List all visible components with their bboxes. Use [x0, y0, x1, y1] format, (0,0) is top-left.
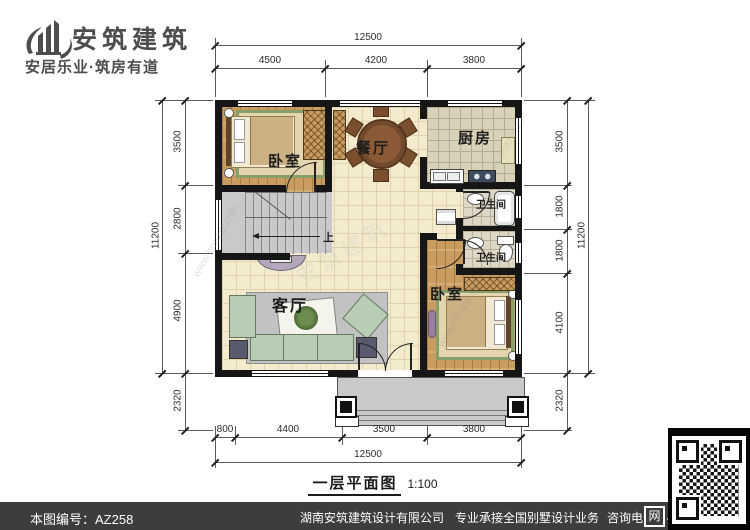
door-leaf [314, 162, 316, 192]
qr-code-image [672, 436, 746, 524]
window-bath2 [515, 243, 522, 263]
dining-cabinet [333, 110, 346, 160]
dim-label: 4400 [258, 424, 318, 435]
room-label-bedroom2: 卧室 [430, 283, 464, 304]
kitchen-stove [468, 170, 496, 183]
bedroom1-wardrobe [303, 110, 326, 160]
extension-line [524, 373, 595, 374]
kitchen-sink-basin [433, 172, 446, 181]
window-kitchen [448, 100, 502, 107]
kitchen-sink-basin [447, 172, 460, 181]
porch-column-core [340, 401, 352, 413]
dimension-line-bottom-seg [215, 437, 521, 438]
door-leaf [463, 191, 489, 193]
sofa-side [229, 295, 256, 338]
footer-bar: 本图编号：AZ258 湖南安筑建筑设计有限公司 专业承接全国别墅设计业务 咨询电… [0, 502, 750, 530]
dim-label: 3500 [173, 120, 184, 164]
drawing-number: 本图编号：AZ258 [30, 509, 133, 528]
dim-label: 4500 [240, 55, 300, 66]
bedroom2-blanket [447, 297, 486, 347]
corridor-cabinet [436, 209, 456, 225]
bedroom2-bench [428, 310, 436, 338]
web-badge: 网 [644, 506, 665, 527]
dim-label: 4900 [173, 289, 184, 333]
dim-label: 4100 [555, 301, 566, 345]
wall-bedroom1-bottom [222, 185, 286, 192]
wall-kitchen-left [420, 107, 427, 119]
wall-stairs-bottom [215, 253, 290, 260]
dim-label: 3800 [444, 55, 504, 66]
bedroom2-pillow [494, 324, 505, 345]
bedroom1-pillow [234, 119, 245, 140]
porch-column-core [512, 401, 524, 413]
wall-bath-divider [456, 226, 515, 231]
window-bath1 [515, 196, 522, 218]
window-kitchen-east [515, 118, 522, 164]
dim-label: 11200 [151, 214, 162, 258]
wall-bedroom2-door-stub [420, 233, 437, 240]
dimension-line-right-overall [588, 100, 589, 373]
bedroom2-wardrobe [464, 277, 516, 291]
sofa-main [250, 334, 354, 361]
drawing-caption: 一层平面图1:100 [288, 472, 458, 493]
qr-finder [676, 440, 699, 463]
dim-label: 2800 [173, 197, 184, 241]
stairs-up-label: 上 [323, 229, 336, 245]
dim-label: 2320 [555, 379, 566, 423]
porch-steps [353, 410, 508, 424]
wall-bedroom1-right [325, 107, 332, 192]
wall-bedroom1-bottom [316, 185, 332, 192]
wall-bedroom2-left [420, 233, 427, 370]
stairs-direction-line [256, 236, 320, 237]
kitchen-fridge [501, 137, 515, 164]
dim-label: 4200 [346, 55, 406, 66]
window-living [252, 370, 328, 377]
stairs-direction-arrow [252, 233, 259, 239]
drawing-title: 一层平面图 [308, 475, 401, 496]
brand-tagline: 安居乐业·筑房有道 [25, 56, 159, 77]
dim-label: 3500 [555, 120, 566, 164]
brand-name: 安筑建筑 [72, 20, 192, 56]
floor-plan-sheet: 安筑建筑 安居乐业·筑房有道 上 [0, 0, 750, 530]
wall-bath2-bottom [456, 268, 515, 275]
bedside-lamp [224, 168, 234, 178]
stairs-treads [245, 192, 327, 254]
room-label-bath1: 卫生间 [476, 196, 506, 211]
dim-label: 12500 [338, 32, 398, 43]
footer-service: 专业承接全国别墅设计业务 [455, 509, 599, 526]
dim-label: 11200 [577, 214, 588, 258]
qr-code [668, 428, 750, 530]
room-label-bedroom1: 卧室 [268, 150, 302, 171]
bedroom1-pillow [234, 142, 245, 163]
brand-logo-icon [22, 14, 72, 60]
dimension-line-right-seg [567, 100, 568, 430]
qr-finder [719, 440, 742, 463]
qr-finder [676, 497, 699, 520]
extension-line [524, 100, 595, 101]
window-bedroom2-south [445, 370, 503, 377]
dim-label: 1800 [555, 229, 566, 273]
dimension-line-top-seg [215, 68, 521, 69]
dimension-line-left-seg [185, 100, 186, 430]
window-stairs [215, 200, 222, 250]
room-label-bath2: 卫生间 [476, 249, 506, 264]
dim-label: 800 [205, 424, 245, 435]
door-leaf [437, 239, 465, 241]
drawing-scale: 1:100 [407, 477, 437, 491]
room-label-kitchen: 厨房 [458, 127, 492, 148]
dim-label: 1800 [555, 185, 566, 229]
dim-label: 3500 [354, 424, 414, 435]
door-leaf [410, 343, 412, 370]
window-dining [340, 100, 420, 107]
dim-label: 12500 [338, 449, 398, 460]
window-bedroom2-east [515, 300, 522, 354]
side-table [229, 340, 248, 359]
bedroom1-bed-headboard [226, 116, 231, 166]
dimension-line-top-overall [215, 45, 521, 46]
bedroom2-bed-headboard [506, 296, 511, 348]
window-bedroom1 [238, 100, 292, 107]
dim-label: 2320 [173, 379, 184, 423]
door-leaf [358, 343, 360, 370]
footer-company: 湖南安筑建筑设计有限公司 [300, 509, 444, 526]
room-label-dining: 餐厅 [356, 137, 390, 158]
dimension-line-bottom-overall [215, 462, 521, 463]
bedside-lamp [224, 108, 234, 118]
room-label-living: 客厅 [272, 292, 308, 316]
bedroom2-pillow [494, 300, 505, 321]
dim-label: 3800 [444, 424, 504, 435]
dimension-line-left-overall [162, 100, 163, 373]
dining-chair [373, 169, 389, 182]
